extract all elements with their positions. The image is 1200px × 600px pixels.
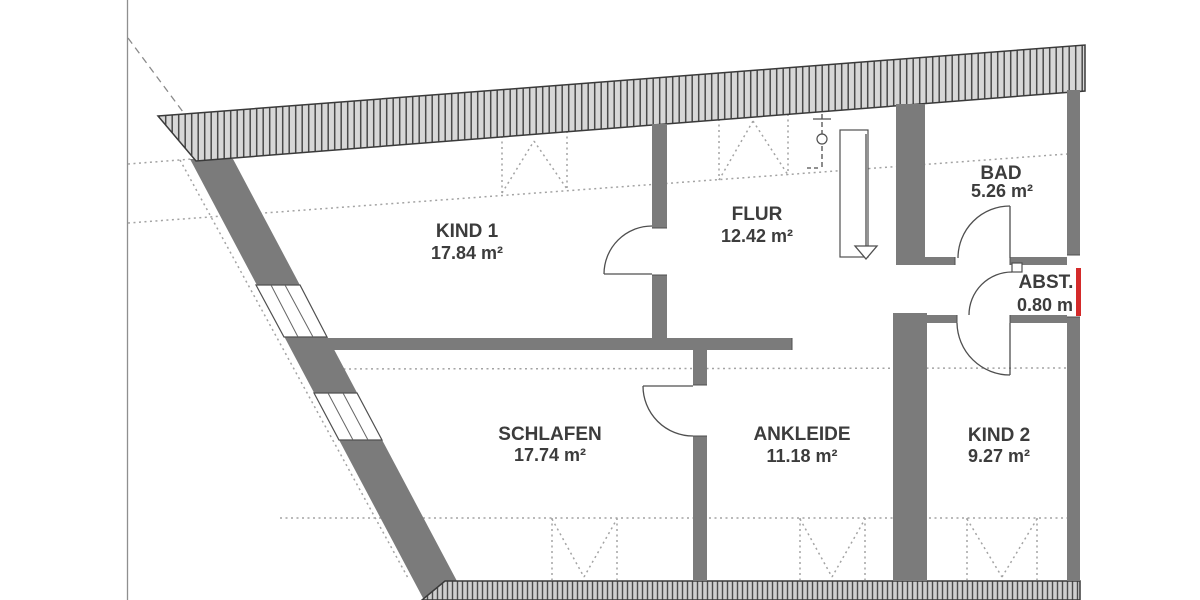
room-area-kind2: 9.27 m² (968, 446, 1030, 466)
room-area-ankleide: 11.18 m² (766, 446, 837, 466)
exterior-wall-bottom-hatched (422, 581, 1080, 600)
room-label-abst: ABST. (1019, 272, 1074, 293)
dormer-marker-kind1 (502, 131, 567, 194)
wall-schlafen-ankleide-upper (693, 350, 707, 385)
door-kind1 (604, 226, 652, 274)
room-area-schlafen: 17.74 m² (514, 445, 586, 465)
exterior-wall-right-upper (1067, 90, 1080, 255)
wall-kind2-top-left (893, 315, 957, 323)
riser-symbol (807, 114, 831, 170)
exterior-wall-left-sloped (190, 159, 467, 600)
room-labels: KIND 1 17.84 m² FLUR 12.42 m² BAD 5.26 m… (431, 163, 1073, 466)
roof-height-line-mid (305, 368, 1067, 369)
interior-walls (326, 104, 1067, 581)
wall-bad-bottom-left (896, 257, 955, 265)
dormer-marker-schlafen (552, 518, 617, 580)
flue-symbol (840, 130, 877, 259)
room-area-bad: 5.26 m² (971, 181, 1033, 201)
dormer-marker-kind2 (967, 518, 1037, 580)
room-area-kind1: 17.84 m² (431, 243, 503, 263)
exterior-wall-top-hatched (158, 45, 1085, 161)
roof-hip-dashed-line (128, 38, 186, 116)
roof-edge-diagonal (180, 160, 408, 578)
door-abst (969, 263, 1022, 315)
wall-kind2-top-right (1010, 315, 1067, 323)
door-bad (958, 206, 1010, 258)
room-area-abst: 0.80 m (1017, 295, 1073, 315)
room-label-kind2: KIND 2 (968, 425, 1030, 446)
room-label-ankleide: ANKLEIDE (753, 424, 850, 445)
riser-circle-icon (817, 134, 827, 144)
roof-height-line-upper (128, 154, 1067, 223)
window-left-upper (256, 285, 327, 337)
room-label-kind1: KIND 1 (436, 221, 499, 242)
room-label-schlafen: SCHLAFEN (498, 424, 601, 445)
eaves-projection-short (128, 159, 192, 164)
room-label-flur: FLUR (732, 204, 783, 225)
floor-plan-drawing: KIND 1 17.84 m² FLUR 12.42 m² BAD 5.26 m… (0, 0, 1200, 600)
door-kind2 (957, 323, 1010, 375)
exterior-wall-right-lower (1067, 317, 1080, 581)
wall-kind1-flur-upper (652, 124, 667, 228)
room-area-flur: 12.42 m² (721, 226, 793, 246)
window-left-lower (314, 393, 382, 440)
dormer-marker-flur (719, 114, 788, 180)
abst-highlight-marker (1076, 268, 1081, 316)
wall-ankleide-kind2 (893, 313, 927, 581)
door-schlafen (643, 386, 693, 436)
wall-schlafen-ankleide-lower (693, 436, 707, 581)
wall-flur-bad (896, 104, 925, 265)
wall-kind1-flur-lower (652, 275, 667, 338)
floor-plan-canvas: KIND 1 17.84 m² FLUR 12.42 m² BAD 5.26 m… (0, 0, 1200, 600)
wall-horizontal-center (326, 338, 792, 350)
dormer-marker-ankleide (800, 518, 865, 580)
